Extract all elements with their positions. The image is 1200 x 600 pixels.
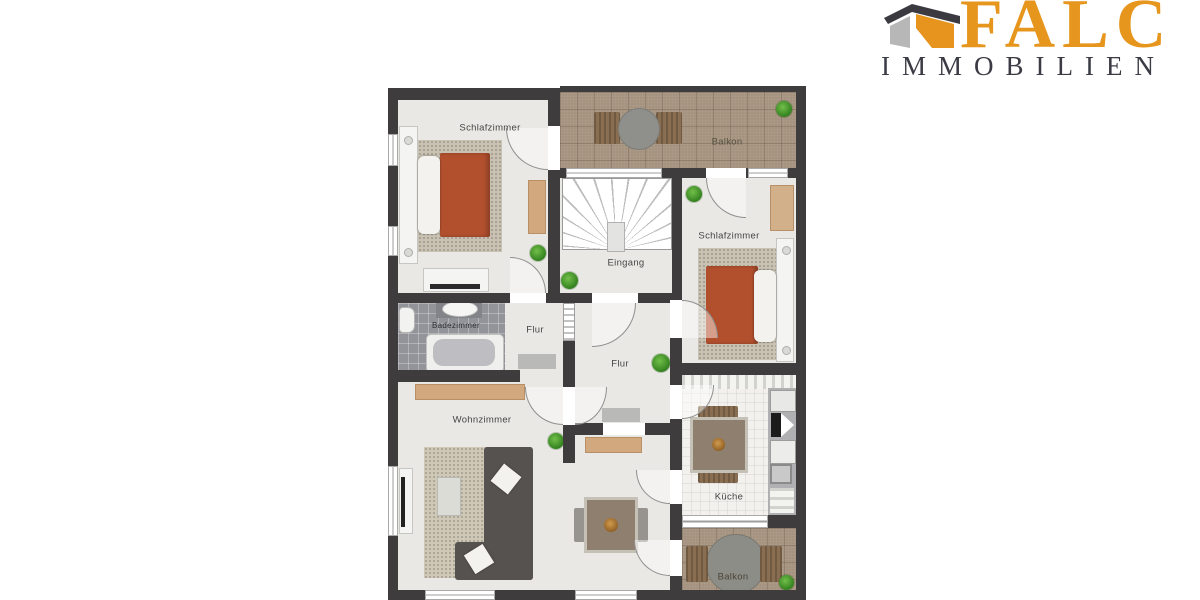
wall-segment <box>768 515 796 528</box>
bedroom1-bench <box>528 180 546 234</box>
bedroom1-blanket <box>440 153 490 237</box>
kitchen-sink <box>770 440 796 464</box>
room-label-eingang: Eingang <box>608 258 645 268</box>
floorplan-page: FALC IMMOBILIEN <box>0 0 1200 600</box>
fruit-bowl <box>712 438 725 451</box>
plant-icon <box>779 575 794 590</box>
kitchen-fridge <box>771 413 781 437</box>
bedroom1-nightstand-knob <box>404 136 413 145</box>
room-label-wohnzimmer: Wohnzimmer <box>453 415 512 425</box>
balcony-door-window <box>682 515 768 528</box>
kitchen-fridge-door-swing <box>781 413 794 437</box>
bedroom2-nightstand-knob <box>782 346 791 355</box>
bedroom2-nightstand-knob <box>782 246 791 255</box>
balcony2-bench <box>686 546 708 582</box>
plant-icon <box>652 354 670 372</box>
hallway-mat <box>602 408 640 422</box>
wall-segment <box>560 86 806 92</box>
hallway-mat <box>518 354 556 369</box>
bedroom1-dresser-front <box>430 284 480 289</box>
plant-icon <box>686 186 702 202</box>
plant-icon <box>776 101 792 117</box>
falc-logo <box>884 0 960 48</box>
kitchen-dishwasher <box>770 488 794 513</box>
door-opening <box>670 385 682 419</box>
room-label-badezimmer: Badezimmer <box>432 322 480 330</box>
bathroom-bathtub-basin <box>433 339 495 366</box>
dining-sideboard <box>585 437 642 453</box>
wall-segment <box>645 423 682 435</box>
bathroom-sink <box>442 301 478 317</box>
room-label-flur: Flur <box>611 359 629 369</box>
room-label-balkon-oben: Balkon <box>712 137 743 147</box>
door-opening <box>670 470 682 504</box>
window <box>388 226 398 256</box>
room-label-kueche: Küche <box>715 492 743 502</box>
room-label-balkon-unten: Balkon <box>718 572 749 582</box>
logo-subtitle-text: IMMOBILIEN <box>881 53 1166 80</box>
wall-segment <box>796 86 806 600</box>
bedroom1-bed-headboard <box>399 126 418 264</box>
bedroom2-bed-headboard <box>776 238 794 362</box>
door-opening <box>563 387 575 425</box>
window <box>566 168 662 178</box>
balcony1-chair <box>594 112 620 144</box>
wall-segment <box>682 363 796 375</box>
bedroom1-nightstand-knob <box>404 248 413 257</box>
bathroom-toilet <box>399 307 415 333</box>
door-opening <box>670 300 682 338</box>
balcony1-round-table <box>618 108 660 150</box>
plant-icon <box>548 433 564 449</box>
plant-icon <box>530 245 546 261</box>
room-label-schlafzimmer-1: Schlafzimmer <box>459 123 520 133</box>
coffee-table <box>437 477 461 516</box>
window <box>575 590 637 600</box>
wall-segment <box>388 88 560 100</box>
falc-house-icon <box>884 0 960 48</box>
wall-segment <box>388 370 520 382</box>
kitchen-cabinet <box>770 390 796 412</box>
door-opening <box>510 293 546 303</box>
staircase-newel <box>607 222 625 252</box>
room-label-flur-klein: Flur <box>526 325 544 335</box>
tv-icon <box>401 477 405 527</box>
bedroom2-pillow <box>754 270 776 342</box>
kitchen-stove <box>770 464 792 484</box>
bedroom2-shelf <box>770 185 794 231</box>
door-opening <box>592 293 638 303</box>
balcony2-round-table <box>706 534 766 594</box>
window <box>388 466 398 536</box>
door-opening <box>670 540 682 576</box>
plant-icon <box>561 272 578 289</box>
window <box>388 134 398 166</box>
window <box>748 168 788 178</box>
fruit-bowl <box>604 518 618 532</box>
glazed-partition <box>563 303 575 341</box>
bedroom1-pillow <box>418 156 440 234</box>
door-opening <box>548 126 560 170</box>
door-opening <box>706 168 746 178</box>
window <box>425 590 495 600</box>
livingroom-sideboard <box>415 384 525 400</box>
wall-segment <box>672 168 682 303</box>
room-label-schlafzimmer-2: Schlafzimmer <box>698 231 759 241</box>
balcony2-bench <box>760 546 782 582</box>
